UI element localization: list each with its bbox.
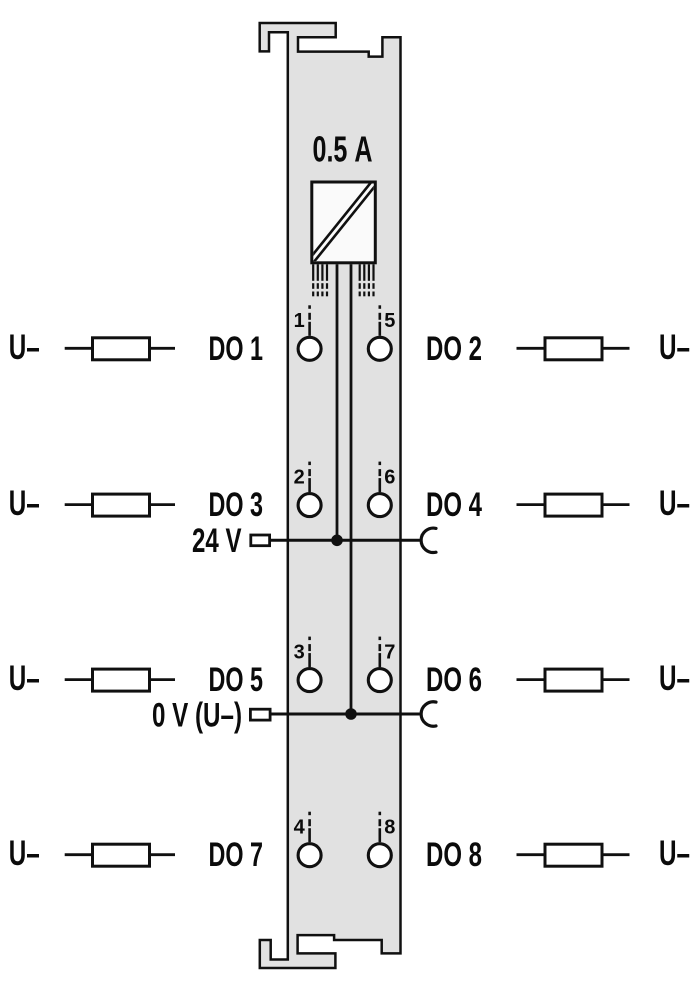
svg-text:DO 5: DO 5 xyxy=(209,661,264,699)
svg-text:U–: U– xyxy=(659,834,690,873)
svg-text:U–: U– xyxy=(9,328,40,367)
svg-text:DO 3: DO 3 xyxy=(209,486,264,524)
svg-text:DO 2: DO 2 xyxy=(426,330,482,368)
svg-text:3: 3 xyxy=(294,641,305,663)
svg-text:U–: U– xyxy=(659,484,690,523)
svg-text:DO 6: DO 6 xyxy=(426,661,482,699)
svg-text:DO 4: DO 4 xyxy=(426,486,482,524)
svg-text:U–: U– xyxy=(659,328,690,367)
svg-text:1: 1 xyxy=(294,310,305,332)
svg-text:6: 6 xyxy=(384,466,395,488)
svg-text:U–: U– xyxy=(9,484,40,523)
svg-text:4: 4 xyxy=(294,816,306,838)
svg-text:0.5 A: 0.5 A xyxy=(313,129,373,170)
svg-text:U–: U– xyxy=(659,659,690,698)
svg-text:DO 1: DO 1 xyxy=(209,330,264,368)
svg-text:7: 7 xyxy=(384,641,395,663)
svg-text:8: 8 xyxy=(384,816,395,838)
svg-text:2: 2 xyxy=(294,466,305,488)
svg-text:24 V: 24 V xyxy=(192,522,242,560)
svg-text:DO 7: DO 7 xyxy=(209,836,264,874)
svg-text:0 V (U–): 0 V (U–) xyxy=(152,697,242,735)
svg-text:5: 5 xyxy=(384,310,395,332)
svg-text:DO 8: DO 8 xyxy=(426,836,482,874)
svg-text:U–: U– xyxy=(9,834,40,873)
svg-text:U–: U– xyxy=(9,659,40,698)
